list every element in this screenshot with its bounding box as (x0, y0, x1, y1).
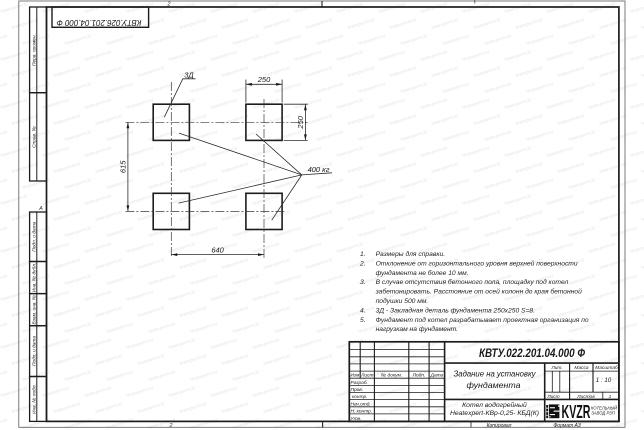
svg-text:№ докум.: № докум. (381, 373, 402, 379)
svg-text:Изм: Изм (350, 373, 360, 379)
svg-text:250: 250 (257, 75, 271, 84)
svg-text:Лист: Лист (546, 394, 559, 400)
svg-text:Задание на установку: Задание на установку (454, 368, 537, 378)
svg-text:1: 1 (609, 394, 612, 400)
svg-text:Фундамент под котел разрабатыв: Фундамент под котел разрабатывает проект… (376, 316, 589, 324)
svg-text:Инв. № дубл.: Инв. № дубл. (32, 263, 38, 293)
svg-text:КВТУ.022.201.04.000 Ф: КВТУ.022.201.04.000 Ф (479, 346, 586, 360)
svg-text:Нач.отд.: Нач.отд. (351, 401, 371, 407)
svg-text:Копировал: Копировал (487, 423, 512, 429)
svg-text:забетонировать. Расстояние от: забетонировать. Расстояние от осей колон… (375, 288, 583, 296)
svg-text:Пров.: Пров. (351, 387, 364, 393)
svg-text:фундамента: фундамента (467, 380, 521, 390)
svg-text:А: А (38, 206, 43, 212)
svg-text:Масштаб: Масштаб (595, 365, 618, 371)
svg-text:Инв. № подл.: Инв. № подл. (32, 384, 38, 414)
svg-text:фундамента не более 10 мм.: фундамента не более 10 мм. (376, 269, 469, 277)
svg-text:Масса: Масса (574, 365, 589, 371)
svg-text:400 кг: 400 кг (308, 165, 330, 174)
svg-text:Heatexpert-КВр-0,25- КБД(К): Heatexpert-КВр-0,25- КБД(К) (450, 410, 539, 417)
svg-text:Формат А3: Формат А3 (553, 423, 581, 429)
svg-text:Справ. №: Справ. № (32, 126, 38, 148)
svg-text:2.: 2. (359, 260, 366, 267)
svg-text:1 : 10: 1 : 10 (596, 377, 612, 384)
svg-text:250: 250 (296, 115, 305, 129)
svg-text:Подп. и дата: Подп. и дата (32, 221, 38, 251)
svg-text:615: 615 (119, 160, 128, 173)
svg-text:Размеры для справки.: Размеры для справки. (376, 250, 446, 258)
svg-text:Перв. примен.: Перв. примен. (32, 34, 38, 66)
svg-text:4.: 4. (360, 307, 366, 314)
svg-text:контр.: контр. (352, 395, 368, 400)
svg-text:3Д: 3Д (184, 71, 194, 80)
svg-text:KVZR: KVZR (562, 402, 591, 422)
svg-text:1.: 1. (360, 251, 366, 258)
svg-text:подушки 500 мм.: подушки 500 мм. (376, 297, 429, 305)
svg-text:Взам. инв. №: Взам. инв. № (32, 295, 38, 325)
svg-text:3.: 3. (360, 279, 366, 286)
svg-text:2: 2 (168, 423, 172, 429)
svg-text:Котел водогрейный: Котел водогрейный (462, 401, 527, 409)
svg-text:640: 640 (211, 245, 224, 254)
svg-text:ЗАВОД РЗП: ЗАВОД РЗП (591, 411, 616, 416)
svg-text:Отклонение от горизонтального: Отклонение от горизонтального уровня вер… (376, 259, 578, 267)
svg-text:Лист: Лист (360, 373, 373, 379)
svg-text:Утв.: Утв. (351, 416, 362, 422)
svg-text:КВТУ.026.201.04.000 Ф: КВТУ.026.201.04.000 Ф (56, 18, 142, 27)
svg-text:нагрузкам на фундамент.: нагрузкам на фундамент. (376, 325, 459, 333)
svg-text:Разраб.: Разраб. (351, 380, 368, 386)
svg-text:Подп.: Подп. (413, 373, 426, 379)
svg-text:Дата: Дата (430, 373, 444, 379)
svg-text:Лит.: Лит. (550, 365, 562, 371)
svg-text:Подп. и дата: Подп. и дата (32, 336, 38, 366)
svg-text:Н. контр.: Н. контр. (351, 409, 373, 415)
svg-text:В случае отсутствия бетонного: В случае отсутствия бетонного пола, площ… (376, 278, 569, 286)
svg-text:5.: 5. (360, 317, 366, 324)
svg-text:Листов: Листов (576, 394, 595, 400)
svg-text:3Д - Закладная деталь фундамен: 3Д - Закладная деталь фундамента 250х250… (376, 306, 536, 314)
